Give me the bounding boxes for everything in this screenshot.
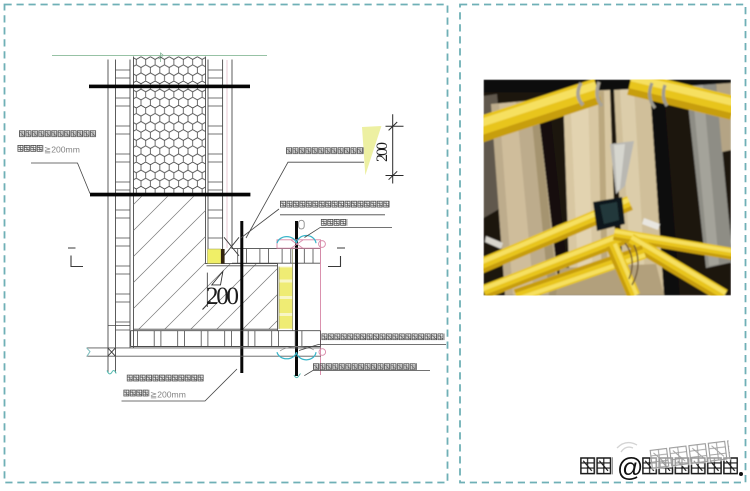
svg-text:200: 200 [206, 283, 239, 310]
svg-text:≧200mm: ≧200mm [44, 144, 80, 154]
svg-text:≧200mm: ≧200mm [150, 389, 186, 399]
svg-text:200: 200 [374, 142, 391, 162]
svg-text:@: @ [617, 452, 643, 482]
